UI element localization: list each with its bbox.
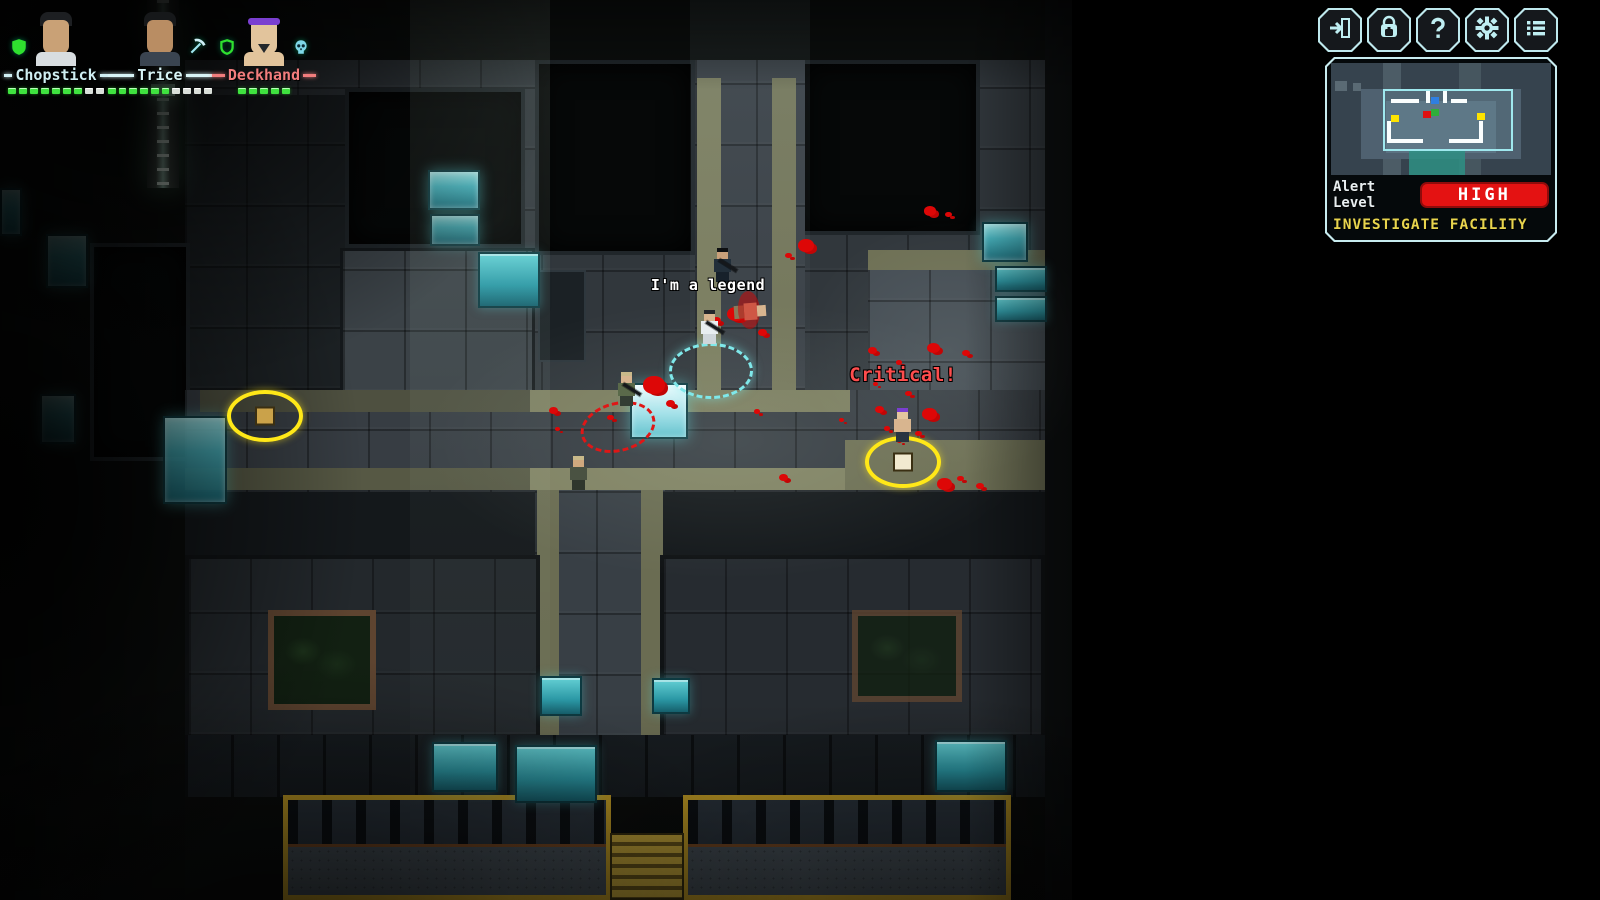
- name-dash: [186, 74, 212, 77]
- party-member-name-text: Chopstick: [15, 66, 96, 84]
- hp-pip-filled: [249, 88, 257, 94]
- hp-pip-filled: [30, 88, 38, 94]
- game-viewport[interactable]: I'm a legendCritical!: [0, 0, 1072, 900]
- topbar-buttons: [1318, 8, 1558, 52]
- hp-pip-filled: [41, 88, 49, 94]
- shield-open-icon: [218, 38, 236, 56]
- avatar-headband: [248, 18, 280, 25]
- hp-pip-filled: [19, 88, 27, 94]
- button-face: [1320, 10, 1360, 50]
- minimap-inner: Alert Level HIGH INVESTIGATE FACILITY: [1327, 59, 1555, 240]
- objective-text: INVESTIGATE FACILITY: [1333, 217, 1528, 233]
- minimap-block: [1353, 83, 1361, 91]
- hp-pip-filled: [119, 88, 127, 94]
- button-face: [1516, 10, 1556, 50]
- minimap: [1331, 63, 1551, 175]
- alert-level-label: Alert Level: [1333, 179, 1420, 211]
- minimap-dot-squad: [1431, 109, 1439, 116]
- minimap-dot-item: [1391, 115, 1399, 122]
- party-member-name: Chopstick: [4, 66, 108, 84]
- hp-pip-filled: [74, 88, 82, 94]
- hp-pip-empty: [194, 88, 202, 94]
- hp-pip-filled: [162, 88, 170, 94]
- pickaxe-icon: [188, 38, 206, 56]
- avatar-face: [43, 20, 69, 54]
- name-dash: [303, 74, 316, 77]
- hp-pip-empty: [85, 88, 93, 94]
- hp-pip-empty: [204, 88, 212, 94]
- gear-icon: [1474, 15, 1500, 45]
- hp-pip-empty: [172, 88, 180, 94]
- minimap-dot-squad: [1431, 97, 1439, 104]
- game-screen: I'm a legendCritical! ChopstickTriceDeck…: [0, 0, 1600, 900]
- party-member-card[interactable]: Chopstick: [4, 8, 108, 96]
- avatar-shoulders: [36, 52, 76, 66]
- alert-level-badge: HIGH: [1420, 182, 1549, 208]
- button-face: [1467, 10, 1507, 50]
- party-member-name: Deckhand: [212, 66, 316, 84]
- hp-pip-filled: [140, 88, 148, 94]
- hp-pip-empty: [183, 88, 191, 94]
- name-dash: [212, 74, 225, 77]
- avatar-shoulders: [244, 52, 284, 66]
- minimap-block: [1335, 81, 1347, 91]
- avatar: [36, 10, 76, 66]
- minimap-teal-zone: [1409, 149, 1465, 175]
- party-member-name-text: Deckhand: [228, 66, 300, 84]
- name-dash: [100, 74, 108, 77]
- inventory-button[interactable]: [1367, 8, 1411, 52]
- menu-button[interactable]: [1514, 8, 1558, 52]
- exit-button[interactable]: [1318, 8, 1362, 52]
- party-member-name-text: Trice: [137, 66, 182, 84]
- party-member-name: Trice: [108, 66, 212, 84]
- hp-pip-filled: [238, 88, 246, 94]
- name-dash: [108, 74, 134, 77]
- hp-pip-filled: [260, 88, 268, 94]
- minimap-viewport-rect: [1383, 89, 1513, 151]
- avatar: [140, 10, 180, 66]
- hp-pip-filled: [52, 88, 60, 94]
- minimap-panel: Alert Level HIGH INVESTIGATE FACILITY: [1325, 57, 1557, 242]
- exit-door-icon: [1327, 15, 1353, 45]
- help-button[interactable]: [1416, 8, 1460, 52]
- skull-icon: [292, 38, 310, 56]
- party-panel: ChopstickTriceDeckhand: [4, 8, 316, 96]
- party-member-card[interactable]: Deckhand: [212, 8, 316, 96]
- floating-text: Critical!: [849, 364, 956, 386]
- floating-text: I'm a legend: [651, 276, 765, 294]
- hp-pip-filled: [271, 88, 279, 94]
- list-icon: [1523, 15, 1549, 45]
- backpack-icon: [1376, 15, 1402, 45]
- shield-icon: [10, 38, 28, 56]
- button-face: [1369, 10, 1409, 50]
- hp-pip-filled: [8, 88, 16, 94]
- avatar-face: [147, 20, 173, 54]
- hp-pip-empty: [96, 88, 104, 94]
- avatar: [244, 10, 284, 66]
- hp-pips: [108, 88, 212, 94]
- hp-pips: [4, 88, 108, 94]
- hp-pips: [212, 88, 316, 94]
- name-dash: [4, 74, 12, 77]
- settings-button[interactable]: [1465, 8, 1509, 52]
- avatar-shoulders: [140, 52, 180, 66]
- hp-pip-filled: [108, 88, 116, 94]
- hp-pip-filled: [63, 88, 71, 94]
- minimap-dot-enemy: [1423, 111, 1431, 118]
- party-member-card[interactable]: Trice: [108, 8, 212, 96]
- minimap-dot-item: [1477, 113, 1485, 120]
- hp-pip-filled: [129, 88, 137, 94]
- hp-pip-filled: [282, 88, 290, 94]
- hp-pip-filled: [151, 88, 159, 94]
- button-face: [1418, 10, 1458, 50]
- question-icon: [1425, 15, 1451, 45]
